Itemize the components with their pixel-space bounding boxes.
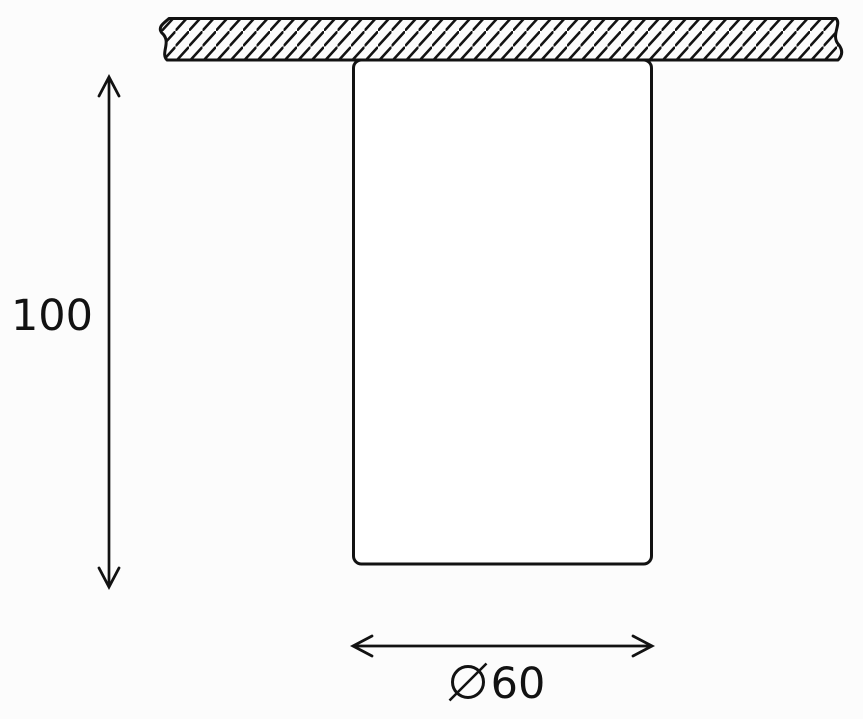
height-dimension: 100	[11, 77, 119, 587]
diameter-symbol-icon	[450, 664, 487, 701]
diameter-dimension-value: 60	[491, 659, 546, 709]
drawing-canvas: 100 60	[0, 0, 863, 719]
ceiling-hatch-band	[160, 19, 841, 61]
height-dimension-value: 100	[11, 291, 93, 341]
diameter-dimension: 60	[353, 636, 652, 709]
dimension-drawing: 100 60	[0, 0, 863, 719]
ceiling-section	[160, 19, 841, 61]
fixture-body	[354, 60, 652, 564]
diameter-symbol-slash	[450, 664, 487, 701]
